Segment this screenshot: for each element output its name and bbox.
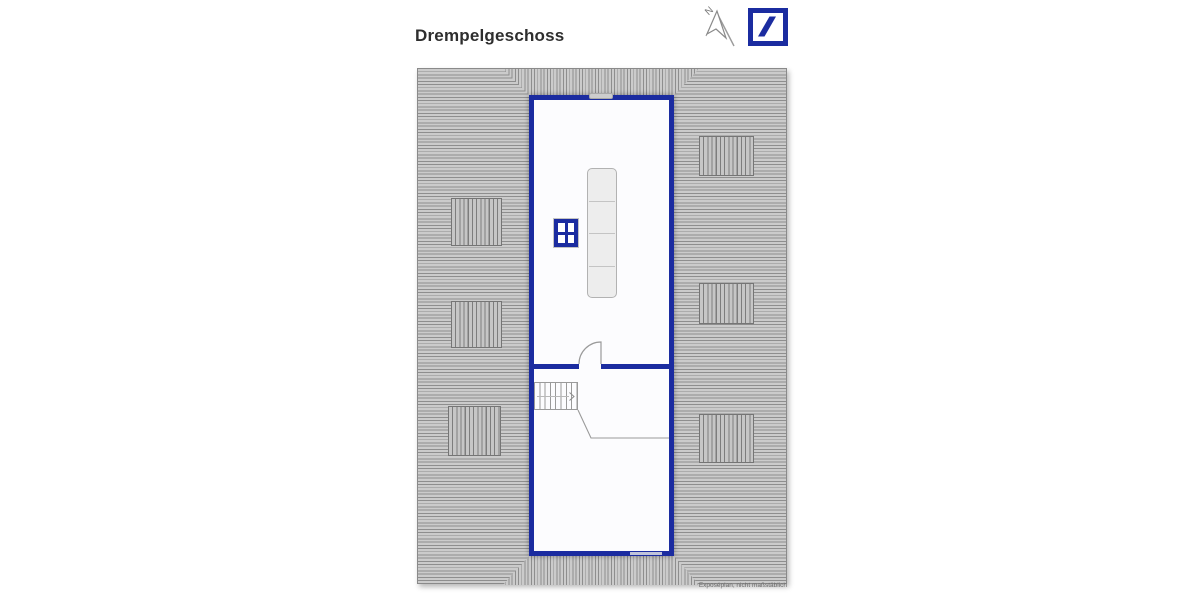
stair-walkline: [537, 396, 569, 397]
window-pane: [568, 235, 575, 244]
wardrobe-symbol: [587, 168, 617, 298]
wall-window-marker: [630, 552, 662, 555]
wardrobe-divider: [589, 233, 615, 234]
window-grid-icon: [554, 219, 578, 247]
staircase: [534, 382, 578, 410]
roof-plane-south: [503, 556, 699, 585]
north-arrow-icon: N: [694, 2, 740, 50]
roof-window: [699, 283, 754, 324]
stairwell-opening-line: [578, 410, 669, 438]
door-swing: [579, 342, 601, 364]
attic-room: [529, 95, 674, 556]
north-label: N: [703, 5, 716, 18]
stair-direction-arrow-icon: [569, 392, 575, 401]
floor-plan: [417, 68, 787, 584]
roof-window: [451, 301, 502, 348]
wall-opening-marker: [589, 93, 613, 99]
roof-window: [699, 414, 754, 463]
roof-window: [451, 198, 502, 246]
page-title: Drempelgeschoss: [415, 26, 564, 46]
roof-window: [699, 136, 754, 176]
window-pane: [558, 235, 565, 244]
wardrobe-divider: [589, 266, 615, 267]
roof-plane-north: [503, 69, 699, 95]
window-pane: [558, 223, 565, 232]
roof-window: [448, 406, 501, 456]
deutsche-bank-logo-icon: [748, 8, 788, 46]
footer-note: Exposéplan, nicht maßstäblich: [587, 582, 787, 589]
window-pane: [568, 223, 575, 232]
wardrobe-divider: [589, 201, 615, 202]
exposé-plan-page: Drempelgeschoss N: [0, 0, 1200, 600]
